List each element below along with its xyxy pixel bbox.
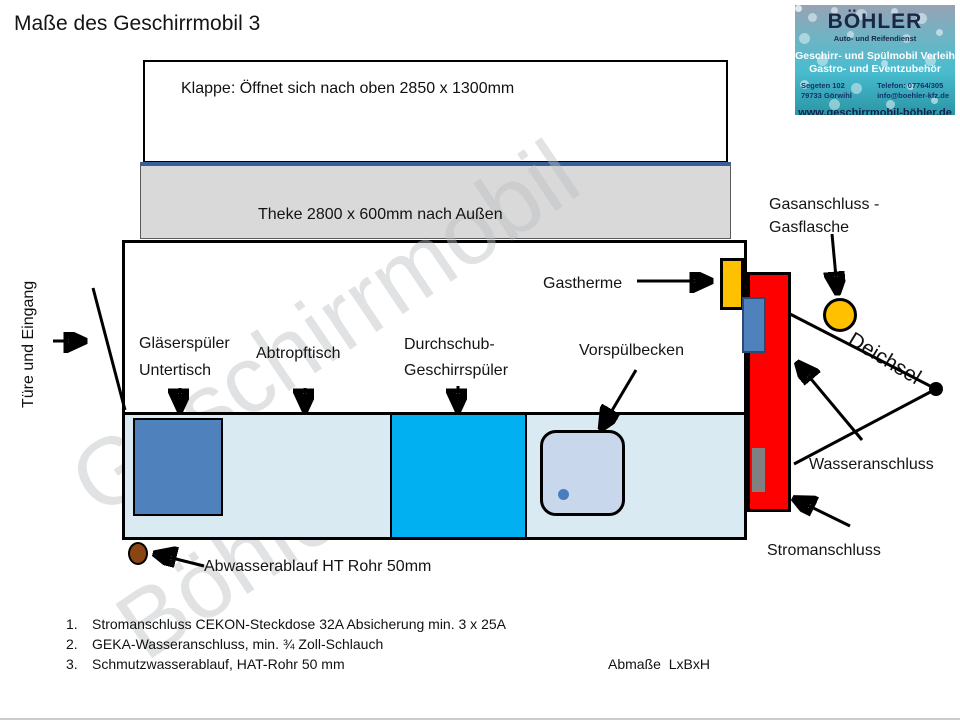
deichsel-label: Deichsel xyxy=(844,328,925,390)
logo-contact-info: Segeten 102 79733 Görwihl Telefon: 07764… xyxy=(795,75,955,101)
note-item: 1. Stromanschluss CEKON-Steckdose 32A Ab… xyxy=(66,614,506,634)
logo-address: Segeten 102 79733 Görwihl xyxy=(801,81,852,101)
note-number: 1. xyxy=(66,614,92,634)
dimensions-heading: Abmaße LxBxH xyxy=(608,654,815,674)
logo-address-street: Segeten 102 xyxy=(801,81,852,91)
klappe-box: Klappe: Öffnet sich nach oben 2850 x 130… xyxy=(143,60,728,163)
note-item: 3. Schmutzwasserablauf, HAT-Rohr 50 mm xyxy=(66,654,506,674)
wasseranschluss-label: Wasseranschluss xyxy=(809,452,934,477)
interior-box xyxy=(122,240,747,415)
abtropftisch-label: Abtropftisch xyxy=(256,341,340,366)
theke-box xyxy=(140,162,731,239)
slide: Geschirrmobil Böhler Maße des Geschirrmo… xyxy=(0,0,960,720)
note-item: 2. GEKA-Wasseranschluss, min. ¾ Zoll-Sch… xyxy=(66,634,506,654)
logo-phone: Telefon: 07764/305 xyxy=(877,81,949,91)
vorspuelbecken-label: Vorspülbecken xyxy=(579,338,684,363)
abwasserablauf-label: Abwasserablauf HT Rohr 50mm xyxy=(204,554,431,579)
logo-service-line2: Gastro- und Eventzubehör xyxy=(795,63,955,75)
wasseranschluss-arrow xyxy=(801,367,862,440)
note-text: Schmutzwasserablauf, HAT-Rohr 50 mm xyxy=(92,654,345,674)
tuere-eingang-label: Türe und Eingang xyxy=(20,266,38,408)
vorspuelbecken-sink xyxy=(540,430,625,516)
theke-label: Theke 2800 x 600mm nach Außen xyxy=(258,202,503,227)
gasanschluss-arrow xyxy=(832,234,837,288)
glaeserspueler-rect xyxy=(133,418,223,516)
door-swing-line xyxy=(93,288,125,410)
glaeserspueler-label: Gläserspüler Untertisch xyxy=(139,330,230,384)
sink-drain-dot xyxy=(558,489,569,500)
gastherme-label: Gastherme xyxy=(543,271,622,296)
front-window-rect xyxy=(742,297,766,353)
logo-phone-email: Telefon: 07764/305 info@boehler-kfz.de xyxy=(877,81,949,101)
dimensions-inner: Innen: 3030 x 1480 x 2000mm xyxy=(608,714,815,720)
gastherme-rect xyxy=(720,258,744,310)
logo-service-line1: Geschirr- und Spülmobil Verleih xyxy=(795,50,955,62)
logo-website: www.geschirrmobil-böhler.de xyxy=(795,107,955,115)
dimensions-block: Abmaße LxBxH Innen: 3030 x 1480 x 2000mm… xyxy=(608,614,815,720)
durchschub-label: Durchschub- Geschirrspüler xyxy=(404,332,508,384)
connection-panel-rect xyxy=(752,448,765,492)
stromanschluss-arrow xyxy=(799,501,850,526)
logo-tagline: Auto- und Reifendienst xyxy=(795,34,955,43)
logo-email: info@boehler-kfz.de xyxy=(877,91,949,101)
note-number: 2. xyxy=(66,634,92,654)
note-text: GEKA-Wasseranschluss, min. ¾ Zoll-Schlau… xyxy=(92,634,383,654)
page-title: Maße des Geschirrmobil 3 xyxy=(14,11,260,37)
gasanschluss-label: Gasanschluss - Gasflasche xyxy=(769,193,879,239)
deichsel-coupling-dot xyxy=(929,382,943,396)
durchschub-geschirrspueler-rect xyxy=(390,415,527,537)
stromanschluss-label: Stromanschluss xyxy=(767,538,881,563)
gas-bottle-circle xyxy=(823,298,857,332)
logo-brand-text: BÖHLER xyxy=(795,10,955,34)
note-number: 3. xyxy=(66,654,92,674)
waste-drain-circle xyxy=(128,542,148,565)
logo-address-city: 79733 Görwihl xyxy=(801,91,852,101)
boehler-logo-card: BÖHLER Auto- und Reifendienst Geschirr- … xyxy=(795,5,955,115)
abwasserablauf-arrow xyxy=(160,555,204,566)
worktop-band xyxy=(122,412,747,540)
note-text: Stromanschluss CEKON-Steckdose 32A Absic… xyxy=(92,614,506,634)
klappe-label: Klappe: Öffnet sich nach oben 2850 x 130… xyxy=(145,62,726,98)
notes-list: 1. Stromanschluss CEKON-Steckdose 32A Ab… xyxy=(66,614,506,674)
